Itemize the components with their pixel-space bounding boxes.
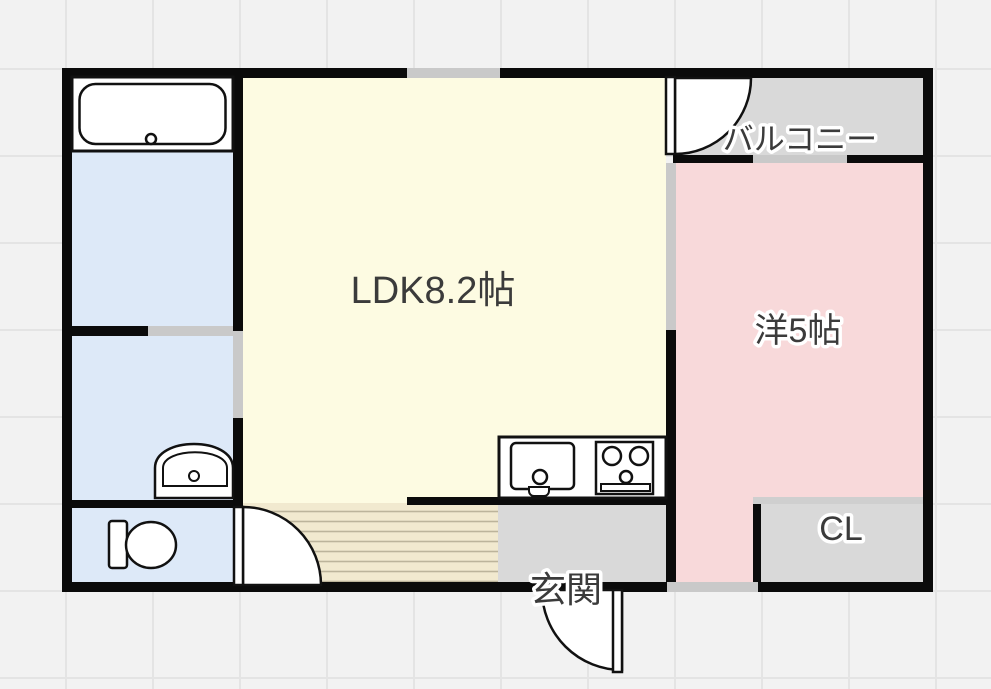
ldk-label: LDK8.2帖: [351, 270, 516, 312]
floor-plan: LDK8.2帖 洋5帖 バルコニー CL 玄関: [0, 0, 991, 689]
balcony-label: バルコニー: [723, 122, 877, 157]
opening-ldk-western-door: [666, 163, 676, 330]
wall-bottom: [62, 582, 933, 592]
window-bottom: [667, 582, 758, 592]
wall-closet-left: [753, 504, 761, 582]
kitchen-counter: [499, 437, 666, 498]
bathtub-icon: [72, 77, 233, 151]
stove-icon: [596, 442, 653, 494]
opening-bath-door: [148, 326, 233, 336]
wall-right: [923, 68, 933, 592]
entrance-label: 玄関: [530, 569, 602, 610]
window-top: [407, 68, 500, 78]
closet-sliding-door: [753, 497, 923, 504]
wall-bath-washroom: [62, 326, 148, 336]
closet-label: CL: [819, 510, 862, 548]
wall-washroom-toilet: [62, 500, 243, 508]
washbasin-icon: [155, 444, 233, 498]
floor-plan-canvas: LDK8.2帖 洋5帖 バルコニー CL 玄関: [0, 0, 991, 689]
kitchen-sink-icon: [511, 443, 574, 496]
toilet-icon: [109, 521, 176, 568]
opening-washroom-door: [233, 331, 243, 418]
western-room-label: 洋5帖: [755, 312, 842, 350]
wall-wetarea-lower: [233, 418, 243, 508]
